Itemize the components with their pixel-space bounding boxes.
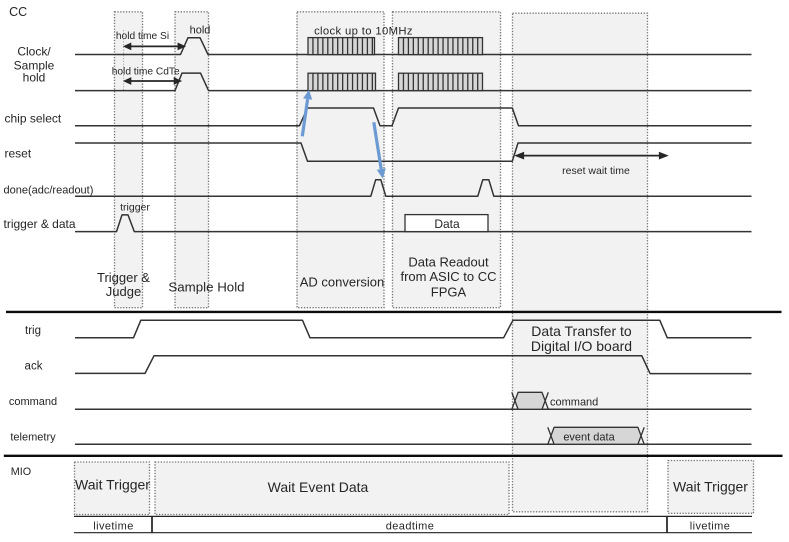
svg-text:Wait Trigger: Wait Trigger bbox=[673, 478, 748, 494]
svg-text:MIO: MIO bbox=[11, 466, 31, 478]
svg-text:CC: CC bbox=[9, 5, 27, 19]
svg-text:clock up to 10MHz: clock up to 10MHz bbox=[314, 25, 413, 37]
svg-text:Judge: Judge bbox=[106, 284, 141, 299]
svg-text:Wait Event Data: Wait Event Data bbox=[268, 479, 369, 495]
svg-text:AD conversion: AD conversion bbox=[300, 275, 385, 290]
svg-text:Trigger &: Trigger & bbox=[97, 270, 150, 285]
svg-text:FPGA: FPGA bbox=[431, 285, 467, 300]
svg-text:telemetry: telemetry bbox=[10, 431, 56, 443]
svg-text:reset wait time: reset wait time bbox=[562, 165, 630, 177]
svg-text:Clock/: Clock/ bbox=[17, 44, 51, 58]
svg-text:livetime: livetime bbox=[93, 521, 134, 533]
svg-text:Digital I/O board: Digital I/O board bbox=[531, 338, 632, 354]
svg-text:done(adc/readout): done(adc/readout) bbox=[4, 185, 94, 197]
svg-text:chip select: chip select bbox=[5, 111, 62, 125]
svg-text:Data Transfer to: Data Transfer to bbox=[531, 323, 632, 339]
svg-text:Sample Hold: Sample Hold bbox=[168, 280, 244, 295]
svg-text:Data: Data bbox=[434, 217, 460, 231]
svg-text:from ASIC to CC: from ASIC to CC bbox=[400, 269, 496, 284]
svg-text:deadtime: deadtime bbox=[386, 521, 434, 533]
svg-text:trigger: trigger bbox=[120, 201, 150, 213]
svg-text:livetime: livetime bbox=[690, 521, 731, 533]
svg-text:hold: hold bbox=[23, 70, 46, 84]
svg-text:ack: ack bbox=[25, 361, 43, 373]
svg-text:hold time Si: hold time Si bbox=[116, 31, 169, 42]
svg-text:Wait Trigger: Wait Trigger bbox=[75, 476, 150, 492]
svg-text:command: command bbox=[550, 397, 598, 409]
svg-text:event data: event data bbox=[563, 431, 615, 443]
svg-text:trig: trig bbox=[25, 325, 41, 337]
svg-text:trigger & data: trigger & data bbox=[4, 217, 76, 231]
svg-text:command: command bbox=[9, 396, 57, 408]
svg-text:Data Readout: Data Readout bbox=[408, 255, 489, 270]
svg-text:hold time CdTe: hold time CdTe bbox=[112, 67, 180, 78]
svg-text:hold: hold bbox=[190, 25, 211, 37]
svg-text:reset: reset bbox=[5, 147, 32, 161]
